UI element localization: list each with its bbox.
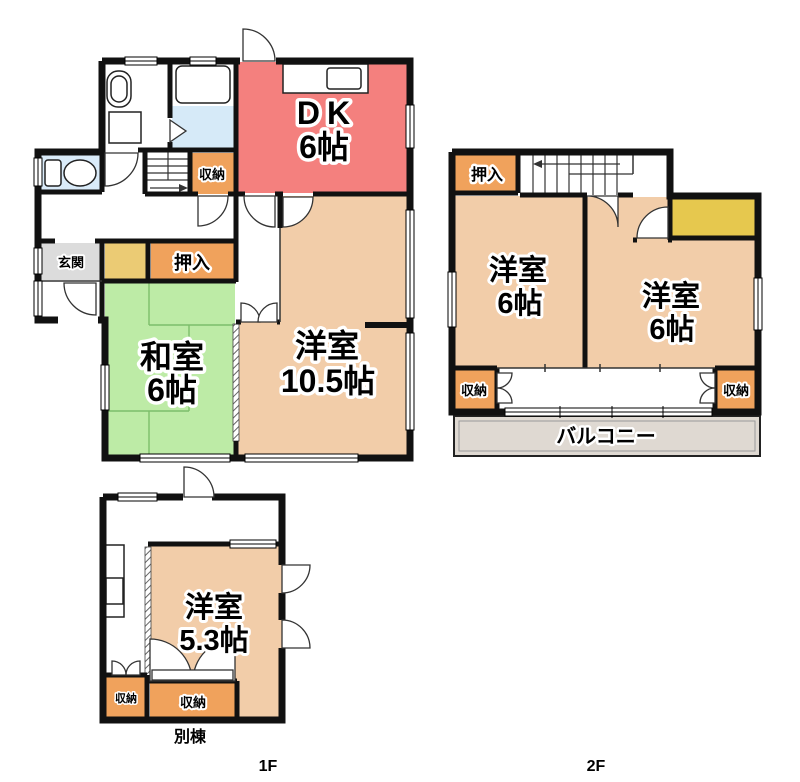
caption-1f: 1F bbox=[259, 758, 278, 775]
entry-door-top bbox=[243, 29, 275, 61]
label-shuno-2f-left: 収納 bbox=[461, 383, 487, 398]
washroom-door bbox=[105, 153, 138, 186]
bathtub-icon bbox=[176, 66, 230, 103]
stairs-2f bbox=[533, 152, 633, 195]
shuno-left-door-a bbox=[497, 373, 512, 388]
closet-yellow-1f bbox=[105, 243, 148, 281]
shuno-door-1f bbox=[198, 196, 228, 226]
label-shuno-annex: 収納 bbox=[180, 695, 206, 710]
wall-stub-yoshitsu bbox=[365, 322, 410, 328]
room-size-annex: 5.3帖 bbox=[179, 624, 248, 657]
room-size-washitsu: 6帖 bbox=[147, 372, 197, 408]
label-shuno-annex-small: 収納 bbox=[115, 691, 137, 705]
stairs-arrow-2f bbox=[533, 160, 542, 168]
windows-annex bbox=[118, 493, 276, 548]
corridor-double-door-right bbox=[258, 303, 277, 322]
floorplan-drawing: DK 6帖 和室 6帖 洋室 10.5帖 収納 押入 玄関 bbox=[0, 0, 800, 782]
floor1-plan: DK 6帖 和室 6帖 洋室 10.5帖 収納 押入 玄関 bbox=[34, 29, 414, 462]
genkan-door bbox=[64, 283, 96, 315]
room-label-dk: DK bbox=[297, 95, 357, 131]
room-label-yoshitsu-1f: 洋室 bbox=[295, 328, 359, 364]
counter-icon-annex bbox=[104, 545, 124, 617]
stairs-1f bbox=[145, 152, 190, 194]
floor2-plan: 洋室 6帖 洋室 6帖 押入 収納 収納 バルコニー bbox=[448, 152, 762, 456]
shuno-left-door-b bbox=[497, 388, 512, 403]
room-size-dk: 6帖 bbox=[299, 129, 349, 165]
annex-plan: 洋室 5.3帖 収納 収納 bbox=[103, 467, 310, 720]
label-genkan: 玄関 bbox=[58, 255, 84, 270]
room-label-annex: 洋室 bbox=[185, 590, 243, 624]
caption-annex: 別棟 bbox=[174, 727, 207, 746]
dk-door bbox=[244, 196, 275, 227]
shuno-right-door-b bbox=[700, 388, 715, 403]
room-label-2f-right: 洋室 bbox=[642, 279, 700, 313]
annex-entry-door bbox=[184, 467, 214, 497]
room-label-2f-left: 洋室 bbox=[489, 253, 547, 287]
label-shuno-2f-right: 収納 bbox=[723, 383, 749, 398]
annex-small-closet-door-right bbox=[126, 661, 140, 675]
shuno-right-door-a bbox=[700, 373, 715, 388]
annex-side-door-upper bbox=[282, 565, 310, 593]
washing-machine-icon bbox=[109, 112, 141, 143]
label-oshiire-2f: 押入 bbox=[471, 165, 503, 184]
room-size-yoshitsu-1f: 10.5帖 bbox=[281, 363, 375, 399]
toilet-icon bbox=[45, 160, 96, 186]
washstand-icon bbox=[107, 71, 131, 107]
room-size-2f-left: 6帖 bbox=[497, 287, 542, 320]
annex-small-closet-door-left bbox=[112, 661, 126, 675]
kitchen-counter-icon bbox=[283, 64, 368, 93]
closet-yellow-2f bbox=[672, 198, 756, 238]
annex-side-door-lower bbox=[282, 620, 310, 648]
caption-2f: 2F bbox=[587, 758, 606, 775]
room-size-2f-right: 6帖 bbox=[649, 313, 694, 346]
corridor-double-door-left bbox=[241, 303, 260, 322]
sliding-partition-washitsu bbox=[233, 324, 239, 441]
label-balcony: バルコニー bbox=[556, 425, 656, 448]
label-shuno-1f: 収納 bbox=[199, 167, 225, 182]
label-oshiire-1f: 押入 bbox=[174, 252, 210, 273]
floorplan-page: DK 6帖 和室 6帖 洋室 10.5帖 収納 押入 玄関 bbox=[0, 0, 800, 782]
room-label-washitsu: 和室 bbox=[140, 339, 204, 375]
annex-closet-door-bar bbox=[152, 670, 233, 680]
